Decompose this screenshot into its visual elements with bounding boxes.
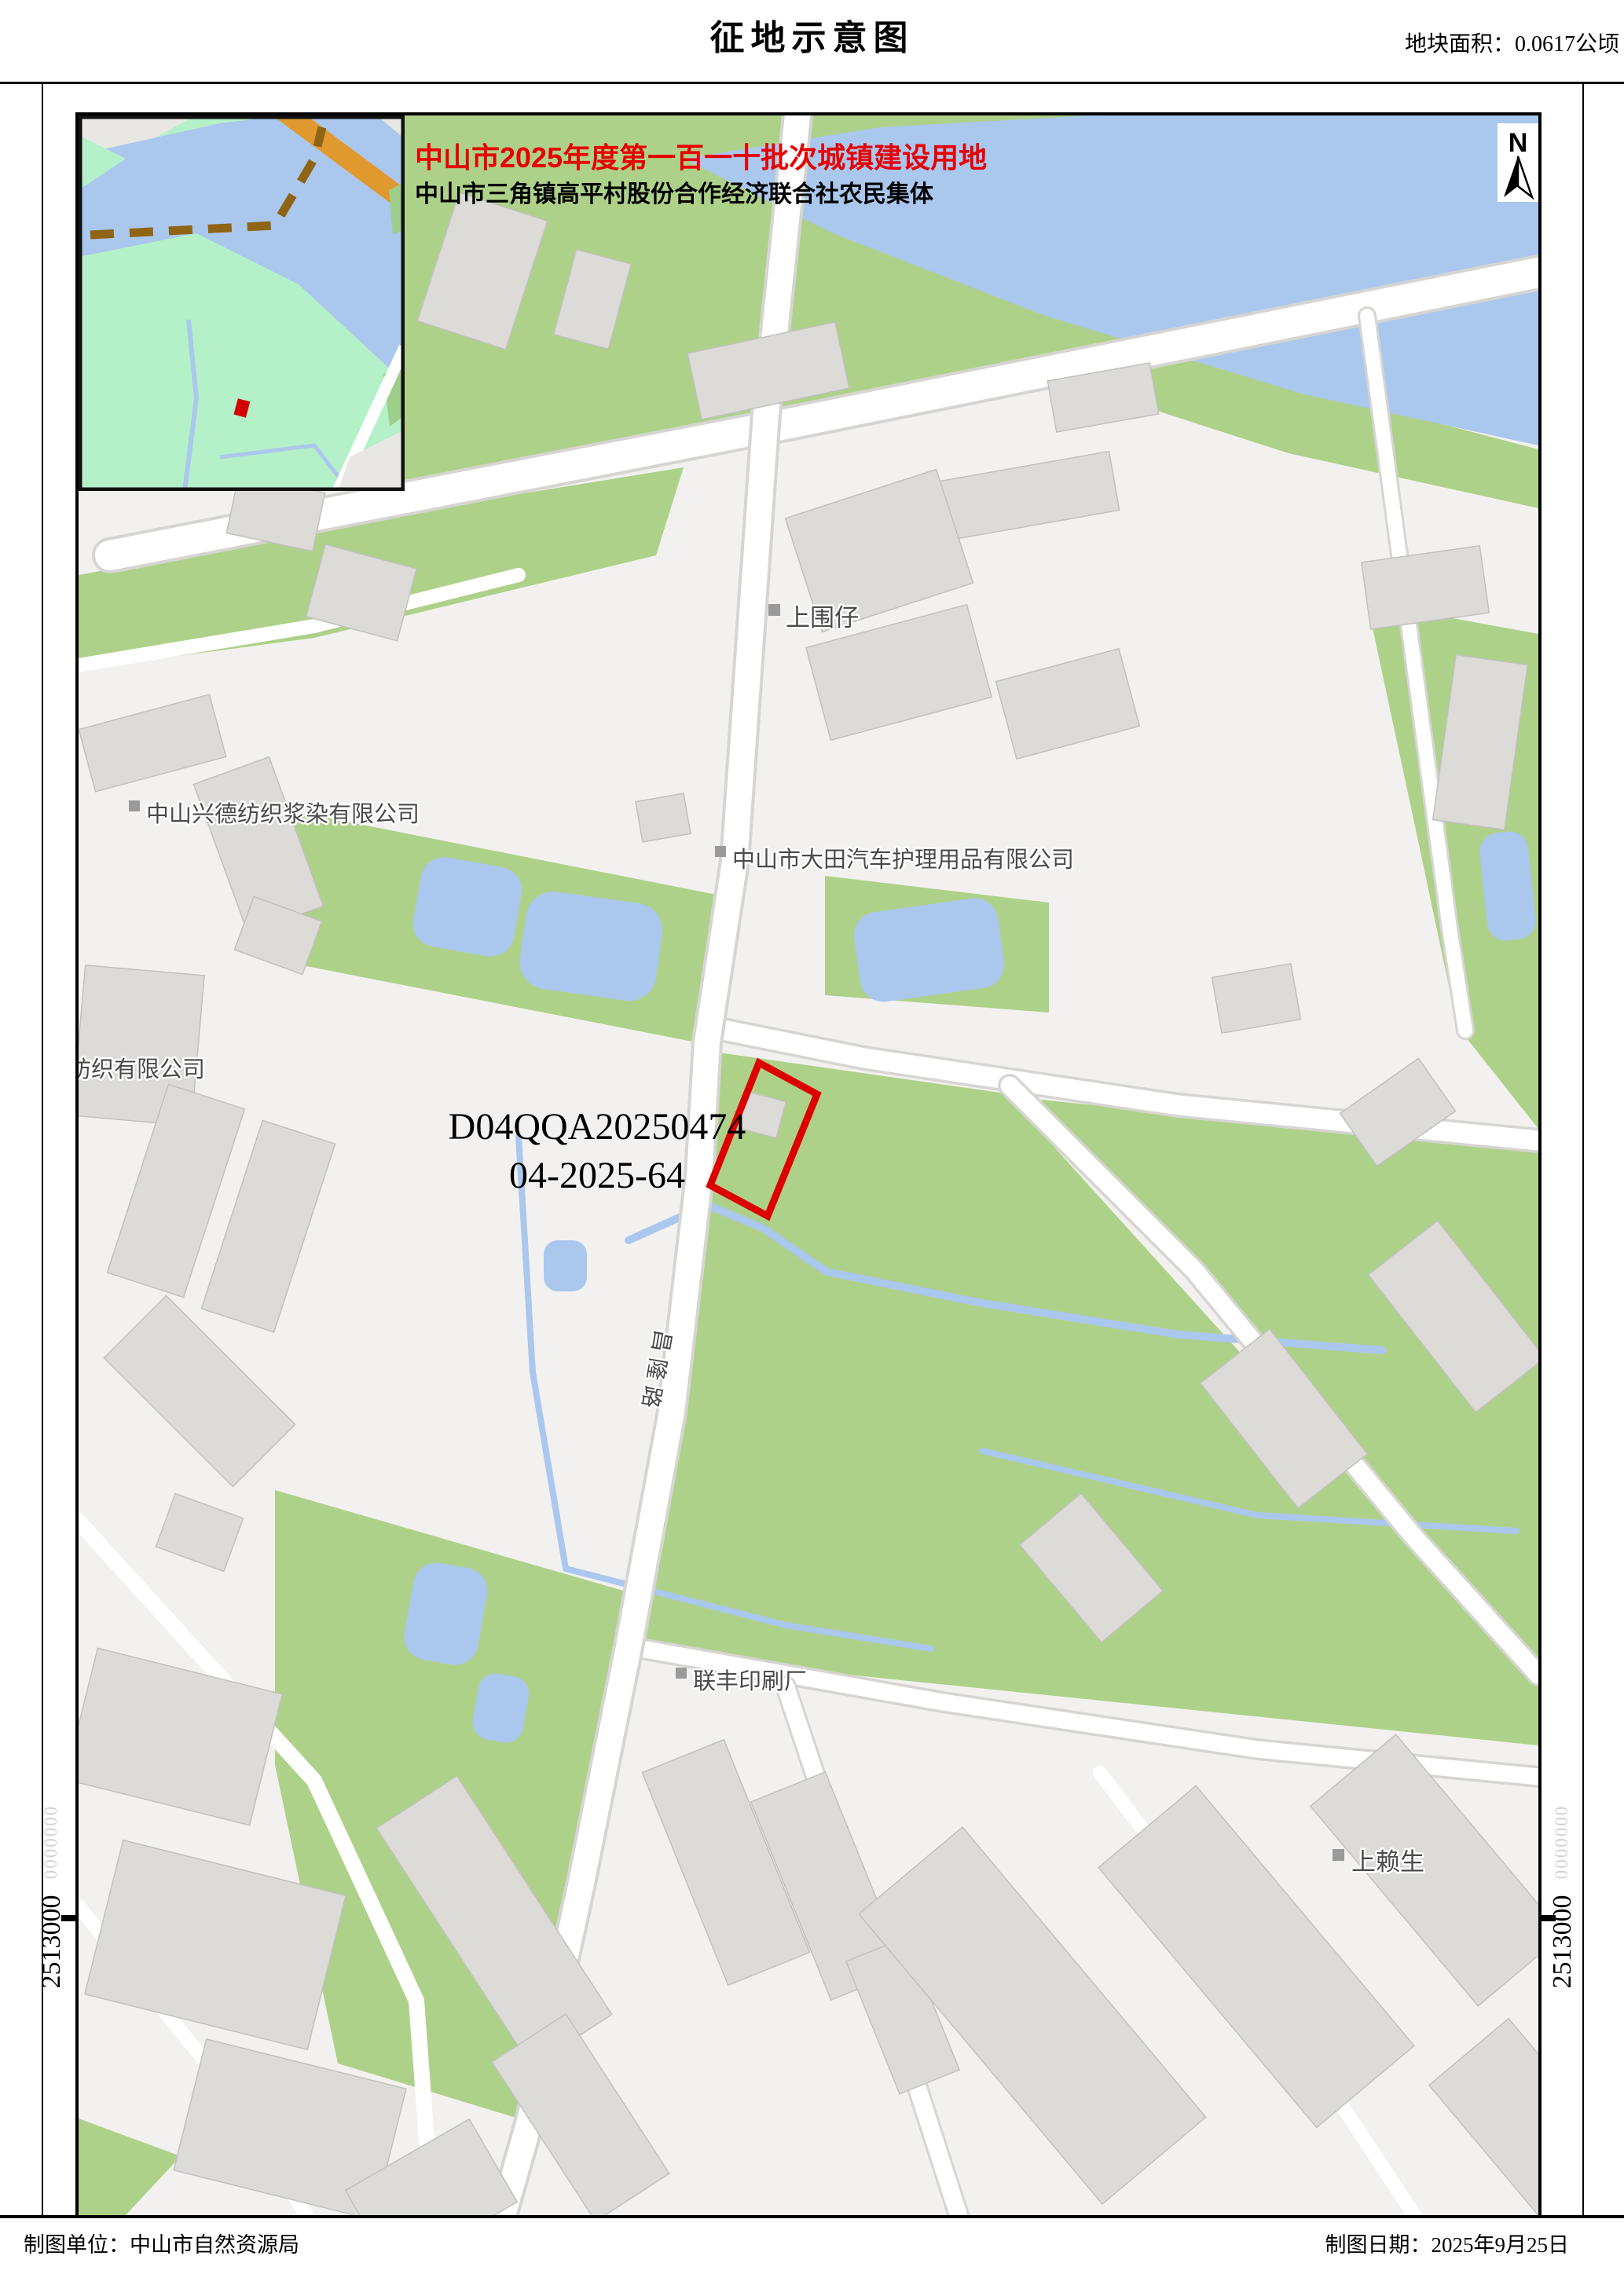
place-marker — [676, 1668, 687, 1679]
footer-rule — [0, 2215, 1624, 2218]
place-marker — [715, 846, 726, 857]
page-title: 征地示意图 — [0, 9, 1624, 60]
parcel-code: D04QQA20250474 — [449, 1106, 746, 1148]
label-cheng-textile: 成纺织有限公司 — [79, 1056, 205, 1082]
coordinate-tick-right — [1538, 1915, 1556, 1921]
border-right — [1582, 82, 1584, 2215]
label-lianfeng: 联丰印刷厂 — [693, 1668, 807, 1694]
owner-subtitle: 中山市三角镇高平村股份合作经济联合社农民集体 — [415, 181, 934, 207]
north-label: N — [1509, 128, 1528, 158]
north-arrow-icon: N — [1498, 123, 1538, 202]
place-marker — [129, 800, 140, 811]
inset-map — [79, 115, 416, 491]
parcel-number: 04-2025-64 — [509, 1155, 685, 1196]
sheet: { "page": { "title": "征地示意图", "area_labe… — [0, 0, 1624, 2296]
header-rule — [0, 82, 1624, 84]
batch-title: 中山市2025年度第一百一十批次城镇建设用地 — [415, 141, 987, 174]
label-shanglaisheng: 上赖生 — [1351, 1848, 1424, 1876]
coordinate-tick-left — [61, 1915, 79, 1921]
footer-producer: 制图单位：中山市自然资源局 — [24, 2228, 299, 2258]
place-marker — [1333, 1849, 1344, 1861]
coordinate-left: 2513000 — [37, 1883, 68, 2001]
plot-area-label: 地块面积：0.0617公顷 — [1405, 27, 1619, 58]
map-canvas: 上围仔 中山兴德纺织浆染有限公司 中山市大田汽车护理用品有限公司 成纺织有限公司… — [79, 115, 1538, 2215]
map-frame: 上围仔 中山兴德纺织浆染有限公司 中山市大田汽车护理用品有限公司 成纺织有限公司… — [75, 112, 1542, 2218]
label-xingde-company: 中山兴德纺织浆染有限公司 — [146, 801, 420, 827]
coordinate-right: 2513000 — [1548, 1883, 1579, 2001]
footer-date: 制图日期：2025年9月25日 — [1325, 2228, 1570, 2258]
place-marker — [768, 604, 780, 616]
label-shangweizai: 上围仔 — [786, 604, 859, 632]
label-datian-company: 中山市大田汽车护理用品有限公司 — [732, 847, 1074, 873]
